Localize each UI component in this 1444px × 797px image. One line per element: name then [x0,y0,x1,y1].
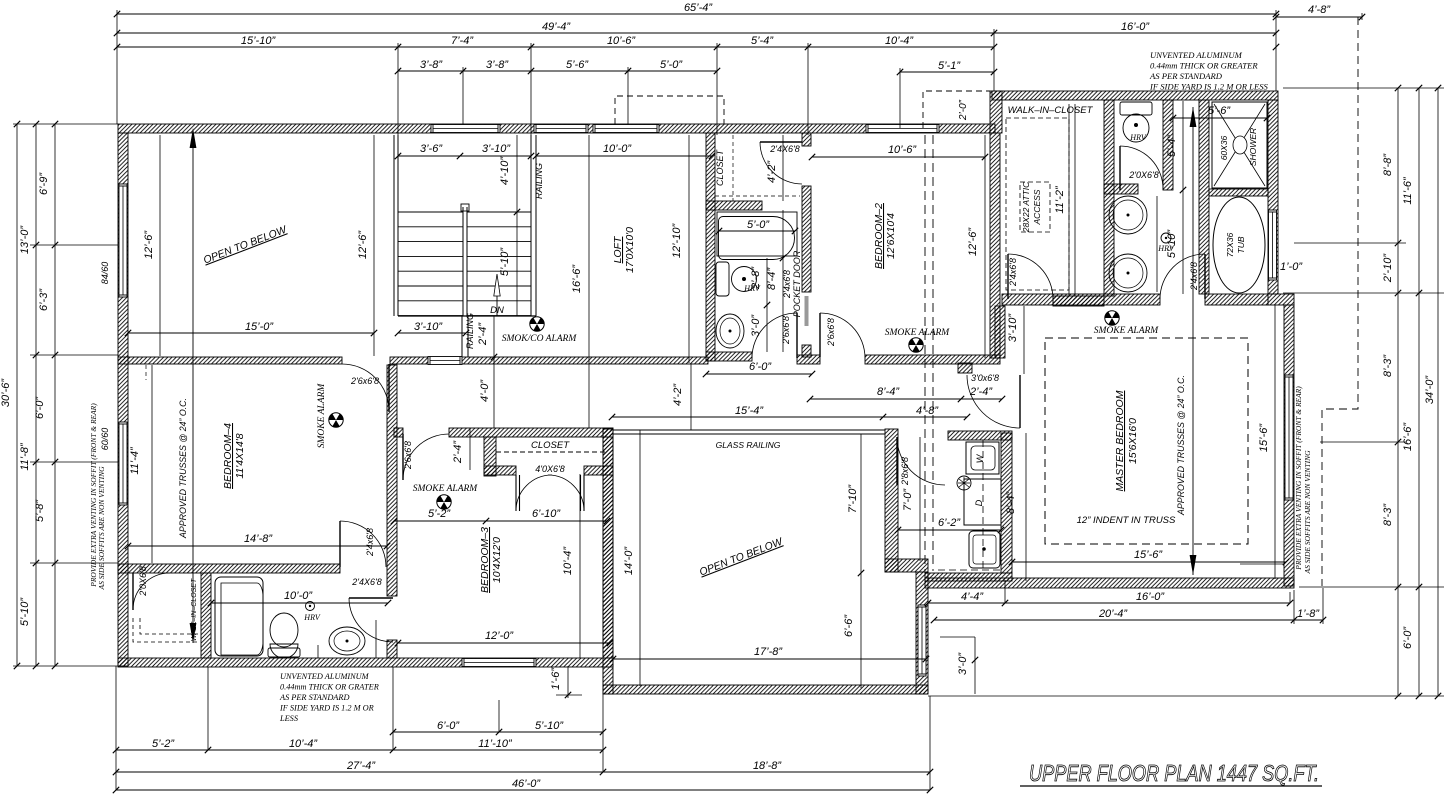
svg-text:HRV: HRV [1129,133,1147,142]
svg-text:SMOKE ALARM: SMOKE ALARM [1094,326,1160,336]
svg-text:UNVENTED ALUMINUM: UNVENTED ALUMINUM [1150,50,1243,60]
svg-text:16’-0”: 16’-0” [1136,591,1165,603]
svg-text:10’-4”: 10’-4” [562,546,574,575]
svg-text:2'6x6'8: 2'6x6'8 [403,441,413,470]
svg-text:5’-0”: 5’-0” [747,219,770,231]
svg-text:3’-6”: 3’-6” [420,143,443,155]
svg-text:2’-4”: 2’-4” [969,386,993,398]
svg-text:4’-10”: 4’-10” [499,156,511,185]
svg-text:3’-8”: 3’-8” [486,59,509,71]
svg-text:5’-2”: 5’-2” [428,508,451,520]
svg-text:11’-4”: 11’-4” [129,446,141,475]
svg-text:1’-6”: 1’-6” [550,667,562,690]
svg-text:DN: DN [490,305,504,316]
svg-text:SMOK/CO ALARM: SMOK/CO ALARM [502,334,578,344]
svg-text:10’-0”: 10’-0” [603,143,632,155]
svg-text:14’-0”: 14’-0” [623,546,635,575]
svg-text:6’-2”: 6’-2” [938,517,961,529]
svg-text:27’-4”: 27’-4” [346,760,376,772]
svg-text:LESS: LESS [279,714,299,723]
svg-text:15’-4”: 15’-4” [735,405,764,417]
svg-text:8’-4”: 8’-4” [877,386,900,398]
svg-text:0.44mm THICK OR GREATER: 0.44mm THICK OR GREATER [1150,61,1258,71]
svg-text:10’-4”: 10’-4” [885,35,914,47]
svg-text:4’-8”: 4’-8” [1308,4,1331,16]
svg-text:1’-8”: 1’-8” [1297,608,1320,620]
svg-text:2'6x6'8: 2'6x6'8 [350,376,379,386]
svg-text:72X36: 72X36 [1225,232,1235,257]
svg-text:5’-2”: 5’-2” [152,738,175,750]
svg-text:4’-0”: 4’-0” [479,379,491,402]
svg-text:15'6X16'0: 15'6X16'0 [1127,418,1139,464]
svg-text:10’-6”: 10’-6” [888,144,917,156]
svg-text:4’-4”: 4’-4” [961,591,984,603]
svg-text:28X22 ATTIC: 28X22 ATTIC [1021,181,1031,233]
svg-text:8’-3”: 8’-3” [1382,354,1394,377]
svg-text:IF SIDE YARD IS 1.2 M OR: IF SIDE YARD IS 1.2 M OR [279,704,374,713]
svg-text:3’-8”: 3’-8” [420,59,443,71]
svg-text:60X36: 60X36 [1219,135,1229,160]
svg-text:6’-0”: 6’-0” [34,396,46,419]
svg-text:11’-6”: 11’-6” [1402,176,1414,205]
svg-text:10’-0”: 10’-0” [284,590,313,602]
svg-text:12'6X10'4: 12'6X10'4 [885,213,897,259]
svg-text:3’-0”: 3’-0” [957,652,969,675]
svg-text:6’-9”: 6’-9” [38,172,50,195]
svg-text:10’-6”: 10’-6” [607,35,636,47]
svg-text:12’-6”: 12’-6” [967,227,979,256]
svg-text:8’-4”: 8’-4” [1005,491,1017,514]
svg-text:3'0x6'8: 3'0x6'8 [971,373,999,383]
svg-text:BEDROOM–3: BEDROOM–3 [479,527,491,593]
svg-text:11’-2”: 11’-2” [1054,185,1066,214]
svg-text:2'0X6'8: 2'0X6'8 [138,566,148,596]
svg-text:10'4X12'0: 10'4X12'0 [491,537,503,583]
svg-text:2'4x6'8: 2'4x6'8 [1008,258,1018,287]
svg-text:15’-10”: 15’-10” [241,35,277,47]
svg-text:2'4x6'8: 2'4x6'8 [365,528,375,557]
svg-text:2'8x6'8: 2'8x6'8 [900,457,910,486]
svg-text:D: D [974,499,984,506]
svg-text:PROVIDE EXTRA VENTING IN SOFFI: PROVIDE EXTRA VENTING IN SOFFIT (FRONT &… [1294,386,1303,571]
svg-text:UNVENTED ALUMINUM: UNVENTED ALUMINUM [280,672,370,681]
svg-text:AS PER STANDARD: AS PER STANDARD [279,693,349,702]
svg-text:7’-4”: 7’-4” [451,35,474,47]
svg-text:7’-0”: 7’-0” [902,488,914,511]
svg-text:IF SIDE YARD IS 1.2 M OR LESS: IF SIDE YARD IS 1.2 M OR LESS [1149,82,1268,92]
svg-text:16’-0”: 16’-0” [1121,21,1150,33]
svg-text:2’-4”: 2’-4” [452,440,464,464]
svg-text:WALK–IN–CLOSET: WALK–IN–CLOSET [1008,105,1094,116]
svg-text:1’-0”: 1’-0” [1280,261,1303,273]
svg-text:BEDROOM–2: BEDROOM–2 [873,203,885,269]
svg-text:10’-4”: 10’-4” [289,738,318,750]
svg-text:5’-1”: 5’-1” [938,60,961,72]
svg-text:SMOKE ALARM: SMOKE ALARM [317,383,327,449]
svg-text:16’-6”: 16’-6” [1402,422,1414,451]
svg-text:2'4X6'8: 2'4X6'8 [351,577,381,587]
svg-text:2’-10”: 2’-10” [1382,253,1394,283]
svg-text:AS PER STANDARD: AS PER STANDARD [1149,71,1223,81]
svg-text:CLOSET: CLOSET [715,148,725,186]
svg-text:4’-2”: 4’-2” [672,383,684,406]
svg-text:0.44mm THICK OR GRATER: 0.44mm THICK OR GRATER [280,683,379,692]
svg-text:12’-10”: 12’-10” [671,223,683,259]
svg-text:8’-4”: 8’-4” [766,267,778,290]
svg-text:5’-4”: 5’-4” [751,35,774,47]
svg-text:5’-10”: 5’-10” [19,597,31,626]
svg-text:5’-10”: 5’-10” [535,720,564,732]
svg-text:6’-10”: 6’-10” [532,508,561,520]
svg-text:5’-10”: 5’-10” [499,247,511,276]
svg-text:17'0X10'0: 17'0X10'0 [624,227,636,273]
svg-text:18’-8”: 18’-8” [753,760,782,772]
svg-text:15’-6”: 15’-6” [1134,549,1163,561]
svg-text:2'4X6'8: 2'4X6'8 [769,144,799,154]
svg-text:2'6x6'8: 2'6x6'8 [781,316,791,345]
svg-text:RAILING: RAILING [534,163,544,199]
svg-text:2'4x6'8: 2'4x6'8 [782,270,792,299]
svg-text:11’-10”: 11’-10” [478,738,513,750]
svg-text:4’-8”: 4’-8” [916,405,939,417]
svg-text:CLOSET: CLOSET [531,440,570,451]
svg-text:65’-4”: 65’-4” [684,2,713,14]
svg-text:49’-4”: 49’-4” [542,21,571,33]
svg-text:APPROVED TRUSSES @ 24” O.C.: APPROVED TRUSSES @ 24” O.C. [178,398,188,539]
svg-text:84/60: 84/60 [100,262,110,285]
svg-text:5’-6”: 5’-6” [566,59,589,71]
svg-text:6’-0”: 6’-0” [749,361,772,373]
svg-text:MASTER BEDROOM: MASTER BEDROOM [1114,390,1126,491]
svg-text:6’-6”: 6’-6” [843,614,855,637]
svg-text:SMOKE ALARM: SMOKE ALARM [413,484,479,494]
svg-text:AS SIDE SOFFITS ARE NON VENTIN: AS SIDE SOFFITS ARE NON VENTING [1303,450,1312,575]
svg-text:6’-0”: 6’-0” [437,720,460,732]
svg-text:8’-3”: 8’-3” [1382,503,1394,526]
svg-text:14’-8”: 14’-8” [244,533,273,545]
svg-text:2’-4”: 2’-4” [477,322,489,346]
svg-text:AS SIDE SOFFITS ARE NON VENTIN: AS SIDE SOFFITS ARE NON VENTING [97,466,106,591]
svg-text:34’-0”: 34’-0” [1424,375,1436,404]
svg-text:12” INDENT IN TRUSS: 12” INDENT IN TRUSS [1077,515,1176,526]
svg-text:2’-8”: 2’-8” [750,266,762,290]
svg-text:3’-10”: 3’-10” [414,321,443,333]
svg-text:3’-10”: 3’-10” [482,143,511,155]
svg-text:2’-0”: 2’-0” [958,99,969,121]
svg-text:2'4x6'8: 2'4x6'8 [1189,262,1199,291]
svg-text:ACCESS: ACCESS [1032,189,1042,225]
svg-text:LOFT: LOFT [612,235,624,263]
svg-text:4’-2”: 4’-2” [766,160,778,183]
svg-text:APPROVED TRUSSES @ 24” O.C.: APPROVED TRUSSES @ 24” O.C. [1176,375,1186,516]
svg-text:17’-8”: 17’-8” [754,646,783,658]
svg-text:6’-0”: 6’-0” [1402,626,1414,649]
svg-text:5’-0”: 5’-0” [660,59,683,71]
svg-text:SHOWER: SHOWER [1248,128,1258,166]
svg-text:3’-10”: 3’-10” [1007,313,1019,342]
svg-text:13’-0”: 13’-0” [19,225,31,254]
svg-text:2'6x6'8: 2'6x6'8 [826,318,836,347]
svg-text:12’-6”: 12’-6” [143,230,155,259]
svg-text:5’-8”: 5’-8” [34,499,46,522]
svg-text:15’-0”: 15’-0” [245,321,274,333]
svg-text:BEDROOM–4: BEDROOM–4 [222,423,234,489]
svg-text:SMOKE ALARM: SMOKE ALARM [885,328,951,338]
svg-text:15’-6”: 15’-6” [1258,423,1270,452]
svg-text:46’-0”: 46’-0” [512,778,541,790]
svg-text:12’-0”: 12’-0” [485,630,514,642]
svg-text:60/60: 60/60 [100,428,110,451]
svg-text:30’-6”: 30’-6” [0,378,12,407]
svg-text:2'0X6'8: 2'0X6'8 [1128,170,1158,180]
svg-text:3’-0”: 3’-0” [750,314,762,337]
svg-text:4'0X6'8: 4'0X6'8 [535,464,564,474]
svg-text:HRV: HRV [303,613,321,622]
svg-text:POCKET DOOR: POCKET DOOR [792,250,802,317]
svg-text:8’-8”: 8’-8” [1382,153,1394,176]
svg-text:6’-3”: 6’-3” [38,288,50,311]
svg-text:5’-10”: 5’-10” [1166,229,1178,258]
svg-text:20’-4”: 20’-4” [1098,608,1128,620]
svg-text:RAILING: RAILING [465,313,475,349]
svg-text:UPPER FLOOR PLAN 1447 SQ.FT.: UPPER FLOOR PLAN 1447 SQ.FT. [1029,760,1319,786]
svg-text:11’-8”: 11’-8” [19,442,31,471]
svg-text:GLASS RAILING: GLASS RAILING [716,440,781,450]
svg-text:7’-10”: 7’-10” [847,484,859,513]
svg-text:5’-6”: 5’-6” [1208,105,1231,117]
svg-text:11'4X14'8: 11'4X14'8 [234,433,246,478]
svg-text:12’-6”: 12’-6” [357,230,369,259]
svg-text:TUB: TUB [1236,236,1246,253]
svg-text:5’-4”: 5’-4” [1166,134,1178,157]
svg-text:16’-6”: 16’-6” [571,264,583,293]
